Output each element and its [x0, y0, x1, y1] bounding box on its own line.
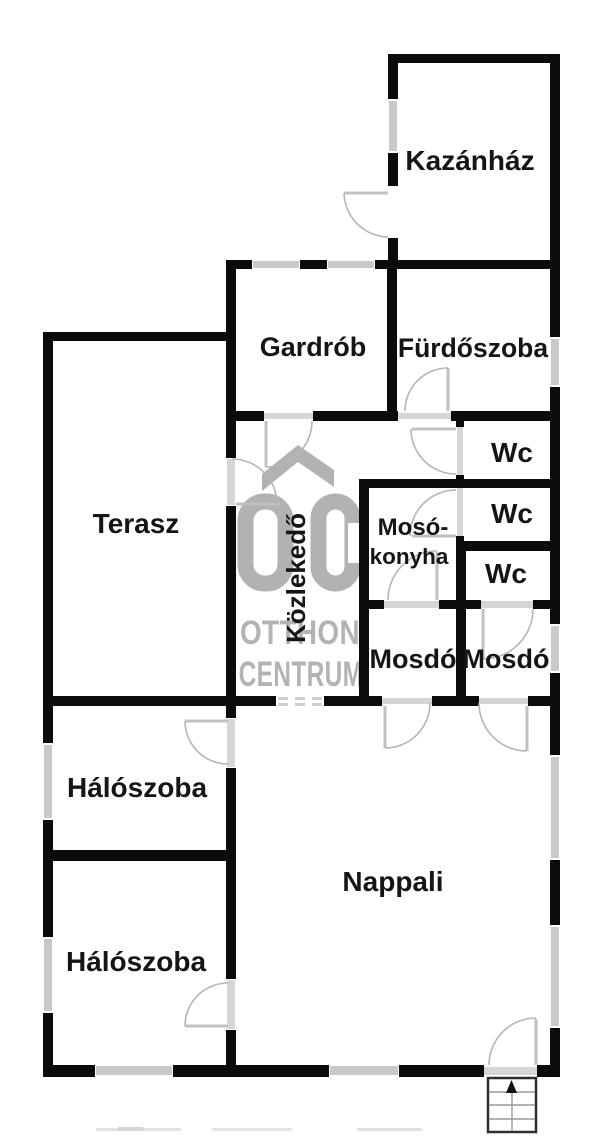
svg-text:Mosó-: Mosó- — [378, 514, 449, 541]
svg-text:Kazánház: Kazánház — [405, 145, 534, 176]
svg-text:Terasz: Terasz — [93, 508, 180, 539]
svg-text:Közlekedő: Közlekedő — [281, 513, 311, 643]
svg-text:Gardrób: Gardrób — [260, 332, 367, 362]
svg-text:Hálószoba: Hálószoba — [67, 772, 207, 803]
svg-text:Wc: Wc — [491, 437, 533, 468]
svg-text:CENTRUM: CENTRUM — [239, 656, 364, 694]
svg-text:Mosdó: Mosdó — [370, 644, 457, 674]
svg-text:Hálószoba: Hálószoba — [66, 946, 206, 977]
svg-text:konyha: konyha — [370, 544, 449, 569]
svg-text:Fürdőszoba: Fürdőszoba — [398, 333, 548, 363]
svg-text:Mosdó: Mosdó — [463, 644, 550, 674]
svg-text:Nappali: Nappali — [342, 866, 443, 897]
svg-text:Wc: Wc — [485, 558, 527, 589]
svg-text:Wc: Wc — [491, 498, 533, 529]
